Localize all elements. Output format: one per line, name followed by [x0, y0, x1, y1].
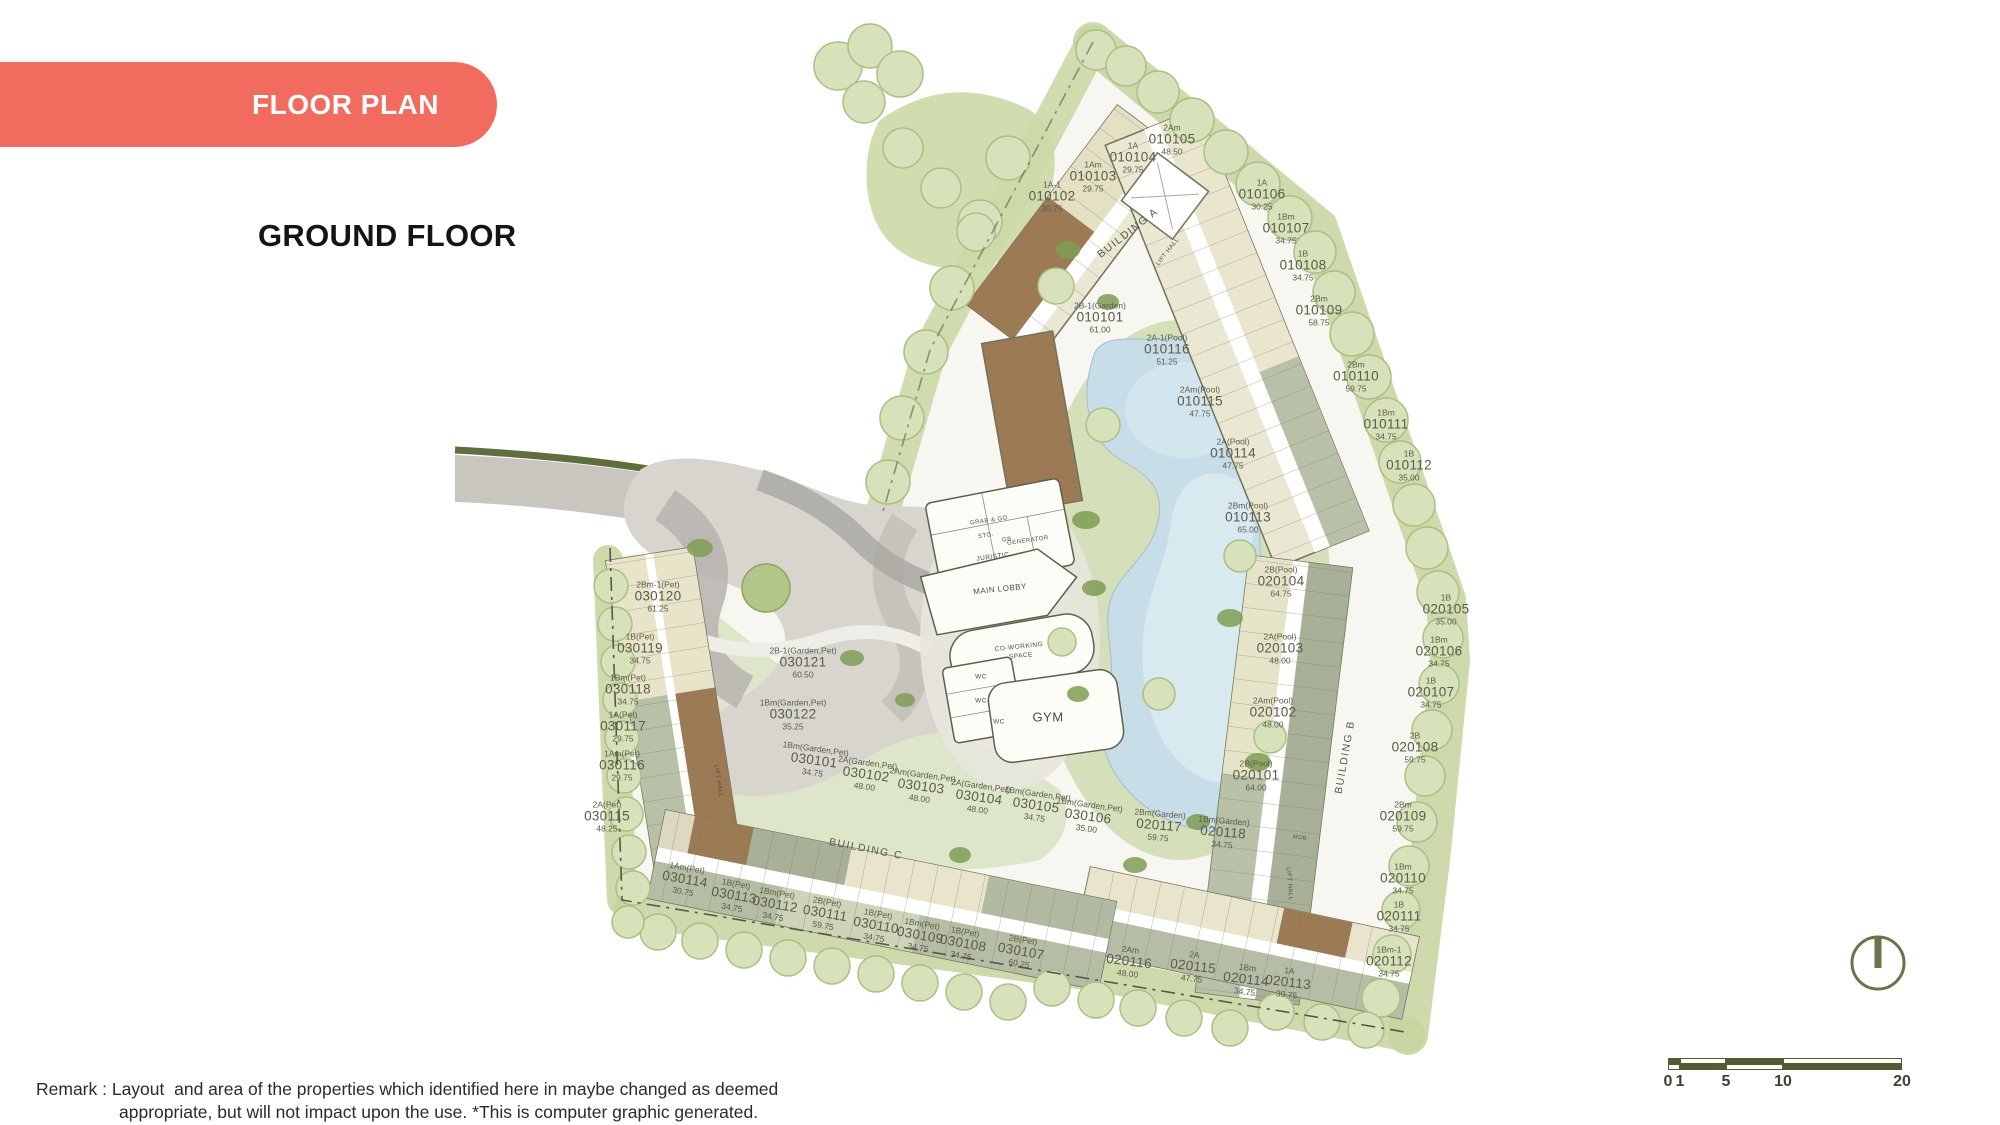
scale-bar-ticks: 0151020: [1668, 1073, 1902, 1095]
scale-segment: [1680, 1064, 1726, 1070]
legend-panel: 0151020: [1650, 920, 1930, 1110]
remark-line-2: appropriate, but will not impact upon th…: [119, 1101, 778, 1124]
scale-segment: [1668, 1064, 1680, 1070]
scale-segment: [1726, 1064, 1783, 1070]
plaza-island-tree: [742, 564, 790, 612]
scale-tick-20: 20: [1893, 1073, 1911, 1091]
remark-note: Remark : Layout and area of the properti…: [36, 1078, 778, 1124]
floor-plan-page: FLOOR PLAN GROUND FLOOR: [0, 0, 2000, 1125]
scale-tick-1: 1: [1676, 1073, 1685, 1091]
scale-tick-0: 0: [1664, 1073, 1673, 1091]
scale-bar-row-bottom: [1668, 1064, 1902, 1070]
scale-bar: 0151020: [1668, 1058, 1902, 1095]
scale-segment: [1783, 1064, 1902, 1070]
gym-shape: [986, 667, 1126, 764]
compass-icon: [1849, 930, 1907, 992]
scale-tick-10: 10: [1774, 1073, 1792, 1091]
north-needle: [1875, 937, 1882, 968]
remark-line-1: Remark : Layout and area of the properti…: [36, 1078, 778, 1101]
scale-tick-5: 5: [1722, 1073, 1731, 1091]
